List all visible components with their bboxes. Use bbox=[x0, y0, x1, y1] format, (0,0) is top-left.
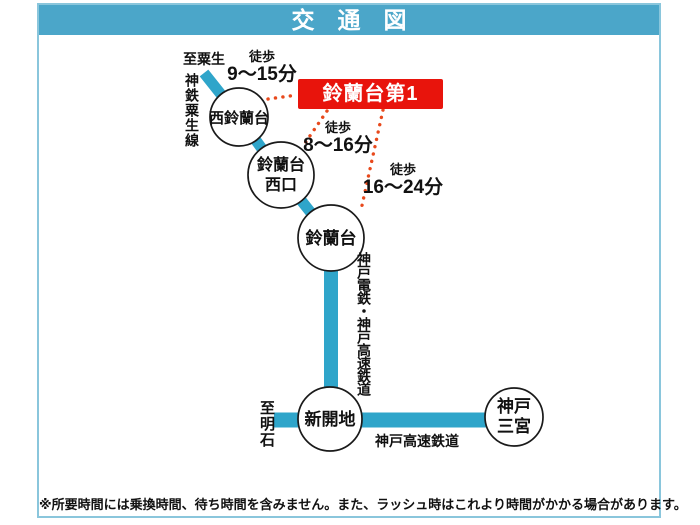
walk-label-2: 徒歩 8〜16分 bbox=[299, 120, 377, 156]
rail-label-kobe-electric: 神戸電鉄・神戸高速鉄道 bbox=[354, 252, 374, 395]
station-label-kobe-sannomiya: 神戸 三宮 bbox=[474, 397, 554, 437]
station-label-suzurandai-nishiguchi: 鈴蘭台 西口 bbox=[241, 156, 321, 196]
access-map-page: 交 通 図 至粟生 神鉄粟生線 神戸電鉄・神戸高速鉄道 至明石 神戸高速鉄道 徒… bbox=[0, 0, 700, 525]
title-bar: 交 通 図 bbox=[39, 5, 659, 35]
footnote: ※所要時間には乗換時間、待ち時間を含みません。また、ラッシュ時はこれより時間がか… bbox=[39, 494, 679, 513]
destination-label: 鈴蘭台第1 bbox=[322, 84, 418, 104]
walk-prefix-2: 徒歩 bbox=[299, 120, 377, 135]
walk-label-1: 徒歩 9〜15分 bbox=[223, 49, 301, 85]
station-label-nishi-suzurandai: 西鈴蘭台 bbox=[199, 110, 279, 127]
page-title: 交 通 図 bbox=[292, 9, 407, 32]
walk-prefix-1: 徒歩 bbox=[223, 49, 301, 64]
station-label-line1: 鈴蘭台 bbox=[241, 156, 321, 176]
walk-prefix-3: 徒歩 bbox=[360, 162, 446, 177]
walk-time-3: 16〜24分 bbox=[360, 177, 446, 198]
station-label-line2: 三宮 bbox=[474, 417, 554, 437]
walk-label-3: 徒歩 16〜24分 bbox=[360, 162, 446, 198]
station-label-line2: 西口 bbox=[241, 176, 321, 196]
destination-box: 鈴蘭台第1 bbox=[298, 79, 443, 109]
endpoint-label-akashi: 至明石 bbox=[256, 400, 277, 448]
station-label-line1: 神戸 bbox=[474, 397, 554, 417]
rail-label-kobe-rapid: 神戸高速鉄道 bbox=[375, 431, 459, 451]
station-label-suzurandai: 鈴蘭台 bbox=[291, 229, 371, 249]
walk-time-1: 9〜15分 bbox=[223, 64, 301, 85]
endpoint-label-ao: 至粟生 bbox=[183, 49, 225, 69]
station-label-shinkaichi: 新開地 bbox=[290, 410, 370, 430]
walk-time-2: 8〜16分 bbox=[299, 135, 377, 156]
